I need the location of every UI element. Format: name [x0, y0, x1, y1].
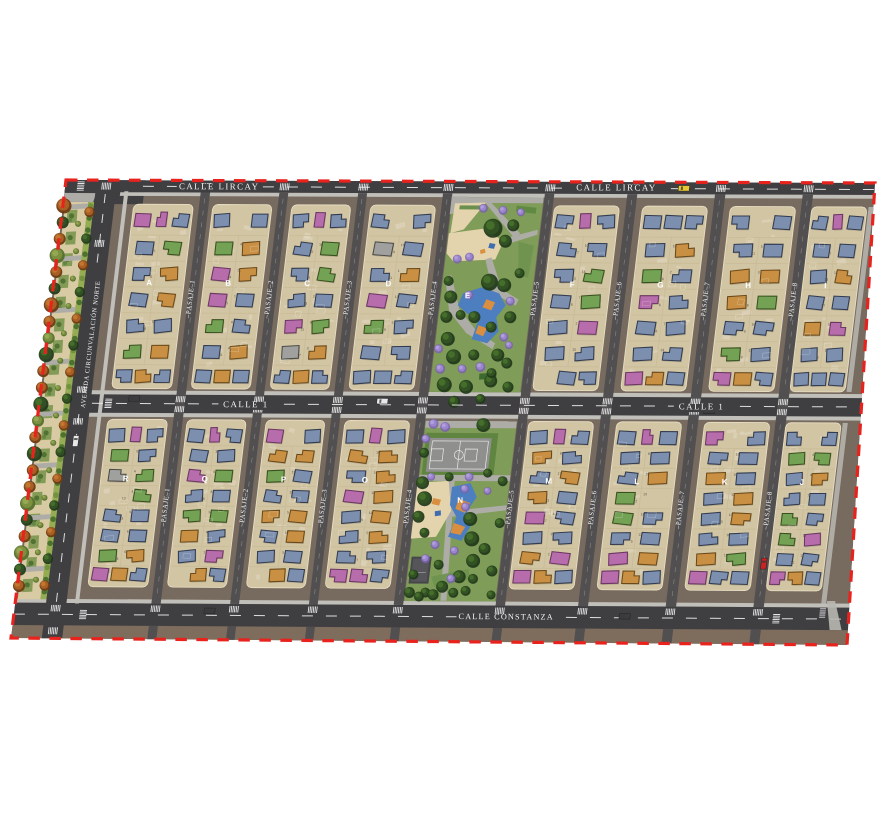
- svg-text:17: 17: [297, 353, 301, 357]
- svg-text:14: 14: [660, 348, 664, 352]
- svg-text:10: 10: [376, 451, 380, 455]
- svg-text:16: 16: [733, 473, 737, 477]
- svg-text:18: 18: [201, 497, 205, 501]
- svg-text:5: 5: [129, 510, 131, 514]
- svg-text:16: 16: [319, 243, 323, 247]
- svg-text:5: 5: [226, 301, 228, 305]
- svg-text:L: L: [634, 477, 639, 486]
- svg-text:6: 6: [124, 550, 126, 554]
- svg-text:4: 4: [134, 470, 136, 474]
- svg-text:15: 15: [310, 250, 314, 254]
- svg-text:13: 13: [748, 349, 752, 353]
- svg-text:1: 1: [398, 269, 400, 273]
- svg-text:5: 5: [282, 551, 284, 555]
- svg-text:18: 18: [726, 533, 730, 537]
- svg-text:G: G: [657, 280, 663, 289]
- svg-text:H: H: [745, 281, 751, 290]
- svg-text:15: 15: [736, 453, 740, 457]
- svg-text:11: 11: [300, 327, 304, 331]
- svg-text:18: 18: [641, 513, 645, 517]
- svg-text:9: 9: [310, 321, 312, 325]
- svg-text:11: 11: [654, 329, 658, 333]
- svg-text:5: 5: [287, 511, 289, 515]
- svg-text:CALLE 1: CALLE 1: [679, 401, 725, 411]
- svg-text:5: 5: [392, 321, 394, 325]
- svg-text:8: 8: [210, 490, 212, 494]
- svg-text:3: 3: [307, 346, 309, 350]
- svg-text:1: 1: [825, 349, 827, 353]
- svg-text:C: C: [304, 279, 310, 288]
- svg-text:11: 11: [292, 470, 296, 474]
- svg-text:I: I: [824, 281, 826, 290]
- svg-text:13: 13: [724, 553, 728, 557]
- svg-text:4: 4: [213, 470, 215, 474]
- svg-text:5: 5: [721, 520, 723, 524]
- svg-text:11: 11: [751, 251, 755, 255]
- svg-text:17: 17: [557, 472, 561, 476]
- svg-text:15: 15: [572, 348, 576, 352]
- svg-text:D: D: [386, 279, 392, 288]
- svg-text:N: N: [457, 496, 463, 505]
- svg-text:Q: Q: [202, 475, 208, 484]
- svg-text:CALLE LIRCAY: CALLE LIRCAY: [576, 182, 657, 192]
- svg-text:1: 1: [553, 512, 555, 516]
- svg-text:10: 10: [585, 244, 589, 248]
- svg-text:7: 7: [663, 322, 665, 326]
- svg-text:14: 14: [357, 538, 361, 542]
- svg-text:3: 3: [631, 540, 633, 544]
- svg-text:4: 4: [812, 453, 814, 457]
- svg-text:13: 13: [120, 517, 124, 521]
- svg-text:13: 13: [303, 302, 307, 306]
- svg-text:16: 16: [401, 243, 405, 247]
- svg-text:A: A: [146, 278, 152, 287]
- svg-text:O: O: [362, 476, 368, 485]
- svg-text:12: 12: [731, 493, 735, 497]
- svg-text:13: 13: [729, 513, 733, 517]
- svg-text:12: 12: [371, 491, 375, 495]
- svg-text:2: 2: [313, 295, 315, 299]
- svg-text:11: 11: [369, 511, 373, 515]
- svg-text:B: B: [225, 279, 231, 288]
- svg-text:17: 17: [543, 519, 547, 523]
- svg-text:13: 13: [643, 492, 647, 496]
- svg-text:3: 3: [758, 271, 760, 275]
- svg-text:14: 14: [208, 510, 212, 514]
- svg-text:9: 9: [228, 346, 230, 350]
- svg-text:14: 14: [115, 557, 119, 561]
- svg-text:7: 7: [829, 252, 831, 256]
- svg-text:8: 8: [648, 452, 650, 456]
- svg-text:18: 18: [645, 472, 649, 476]
- svg-text:10: 10: [673, 244, 677, 248]
- svg-text:10: 10: [285, 531, 289, 535]
- svg-text:6: 6: [659, 303, 661, 307]
- svg-text:13: 13: [803, 534, 807, 538]
- svg-text:4: 4: [810, 473, 812, 477]
- svg-text:8: 8: [747, 303, 749, 307]
- svg-text:5: 5: [366, 531, 368, 535]
- svg-text:2: 2: [670, 270, 672, 274]
- svg-text:9: 9: [384, 328, 386, 332]
- svg-text:4: 4: [220, 353, 222, 357]
- svg-text:9: 9: [741, 355, 743, 359]
- svg-text:P: P: [281, 475, 287, 484]
- svg-text:4: 4: [240, 242, 242, 246]
- svg-text:11: 11: [237, 268, 241, 272]
- svg-text:J: J: [800, 478, 805, 487]
- svg-text:12: 12: [791, 561, 795, 565]
- svg-text:CALLE LIRCAY: CALLE LIRCAY: [179, 181, 260, 191]
- svg-text:17: 17: [234, 294, 238, 298]
- svg-text:R: R: [123, 474, 129, 483]
- svg-text:15: 15: [152, 249, 156, 253]
- svg-text:4: 4: [231, 320, 233, 324]
- svg-text:K: K: [722, 477, 728, 486]
- svg-text:5: 5: [374, 471, 376, 475]
- svg-text:9: 9: [744, 329, 746, 333]
- svg-text:16: 16: [751, 323, 755, 327]
- svg-text:15: 15: [550, 532, 554, 536]
- svg-text:14: 14: [582, 270, 586, 274]
- svg-text:2: 2: [817, 356, 819, 360]
- svg-text:12: 12: [638, 533, 642, 537]
- svg-text:11: 11: [807, 493, 811, 497]
- svg-text:17: 17: [821, 304, 825, 308]
- svg-text:7: 7: [577, 251, 579, 255]
- svg-text:14: 14: [142, 327, 146, 331]
- svg-text:8: 8: [571, 303, 573, 307]
- svg-text:8: 8: [560, 452, 562, 456]
- svg-text:17: 17: [354, 558, 358, 562]
- svg-text:5: 5: [136, 449, 138, 453]
- svg-text:13: 13: [395, 295, 399, 299]
- svg-text:7: 7: [579, 296, 581, 300]
- svg-text:5: 5: [761, 245, 763, 249]
- svg-text:11: 11: [834, 271, 838, 275]
- svg-text:F: F: [570, 280, 575, 289]
- svg-text:8: 8: [361, 518, 363, 522]
- svg-text:3: 3: [828, 323, 830, 327]
- svg-text:2: 2: [548, 552, 550, 556]
- svg-text:M: M: [545, 477, 552, 486]
- svg-text:E: E: [465, 291, 471, 300]
- svg-text:10: 10: [152, 320, 156, 324]
- svg-text:8: 8: [127, 530, 129, 534]
- svg-text:3: 3: [215, 450, 217, 454]
- svg-text:CALLE CONSTANZA: CALLE CONSTANZA: [459, 612, 554, 621]
- svg-text:17: 17: [203, 550, 207, 554]
- svg-text:4: 4: [206, 530, 208, 534]
- svg-text:13: 13: [545, 499, 549, 503]
- svg-text:11: 11: [800, 554, 804, 558]
- svg-text:2: 2: [575, 322, 577, 326]
- svg-text:15: 15: [289, 490, 293, 494]
- svg-text:6: 6: [393, 250, 395, 254]
- svg-text:CALLE 1: CALLE 1: [223, 399, 269, 409]
- svg-text:2: 2: [635, 499, 637, 503]
